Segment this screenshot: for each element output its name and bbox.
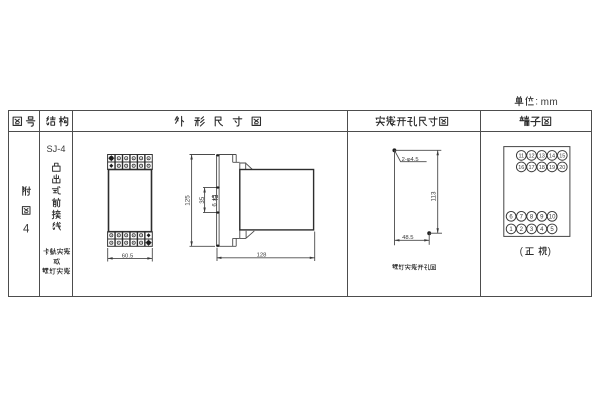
svg-text:20: 20 [559,165,565,171]
svg-text:1: 1 [509,227,513,233]
svg-text:11: 11 [518,153,524,159]
svg-text:3: 3 [530,227,534,233]
svg-text:SJ-4: SJ-4 [47,144,66,154]
svg-text:5: 5 [550,227,554,233]
svg-text:16: 16 [518,165,524,171]
svg-text:2-φ4.5: 2-φ4.5 [402,157,419,163]
svg-text:60.5: 60.5 [122,253,134,259]
svg-text:(: ( [520,247,524,258]
svg-text::: : [535,97,538,108]
svg-text:10: 10 [549,214,556,220]
svg-text:9: 9 [540,214,544,220]
svg-text:12: 12 [528,153,534,159]
svg-text:mm: mm [541,97,558,108]
svg-text:13: 13 [539,153,545,159]
svg-text:6: 6 [509,214,513,220]
svg-text:2: 2 [520,227,524,233]
svg-text:18: 18 [539,165,545,171]
svg-text:): ) [548,247,551,258]
svg-text:7: 7 [520,214,524,220]
svg-text:6: 6 [211,203,218,207]
svg-text:17: 17 [528,165,534,171]
svg-text:48.5: 48.5 [402,235,414,241]
svg-text:4: 4 [540,227,544,233]
svg-text:128: 128 [257,252,268,258]
svg-text:15: 15 [559,153,565,159]
svg-text:4: 4 [23,224,30,236]
svg-text:113: 113 [431,191,438,202]
svg-text:8: 8 [530,214,534,220]
svg-text:14: 14 [549,153,555,159]
svg-text:125: 125 [184,195,191,206]
svg-text:35: 35 [199,196,206,204]
svg-text:19: 19 [549,165,555,171]
